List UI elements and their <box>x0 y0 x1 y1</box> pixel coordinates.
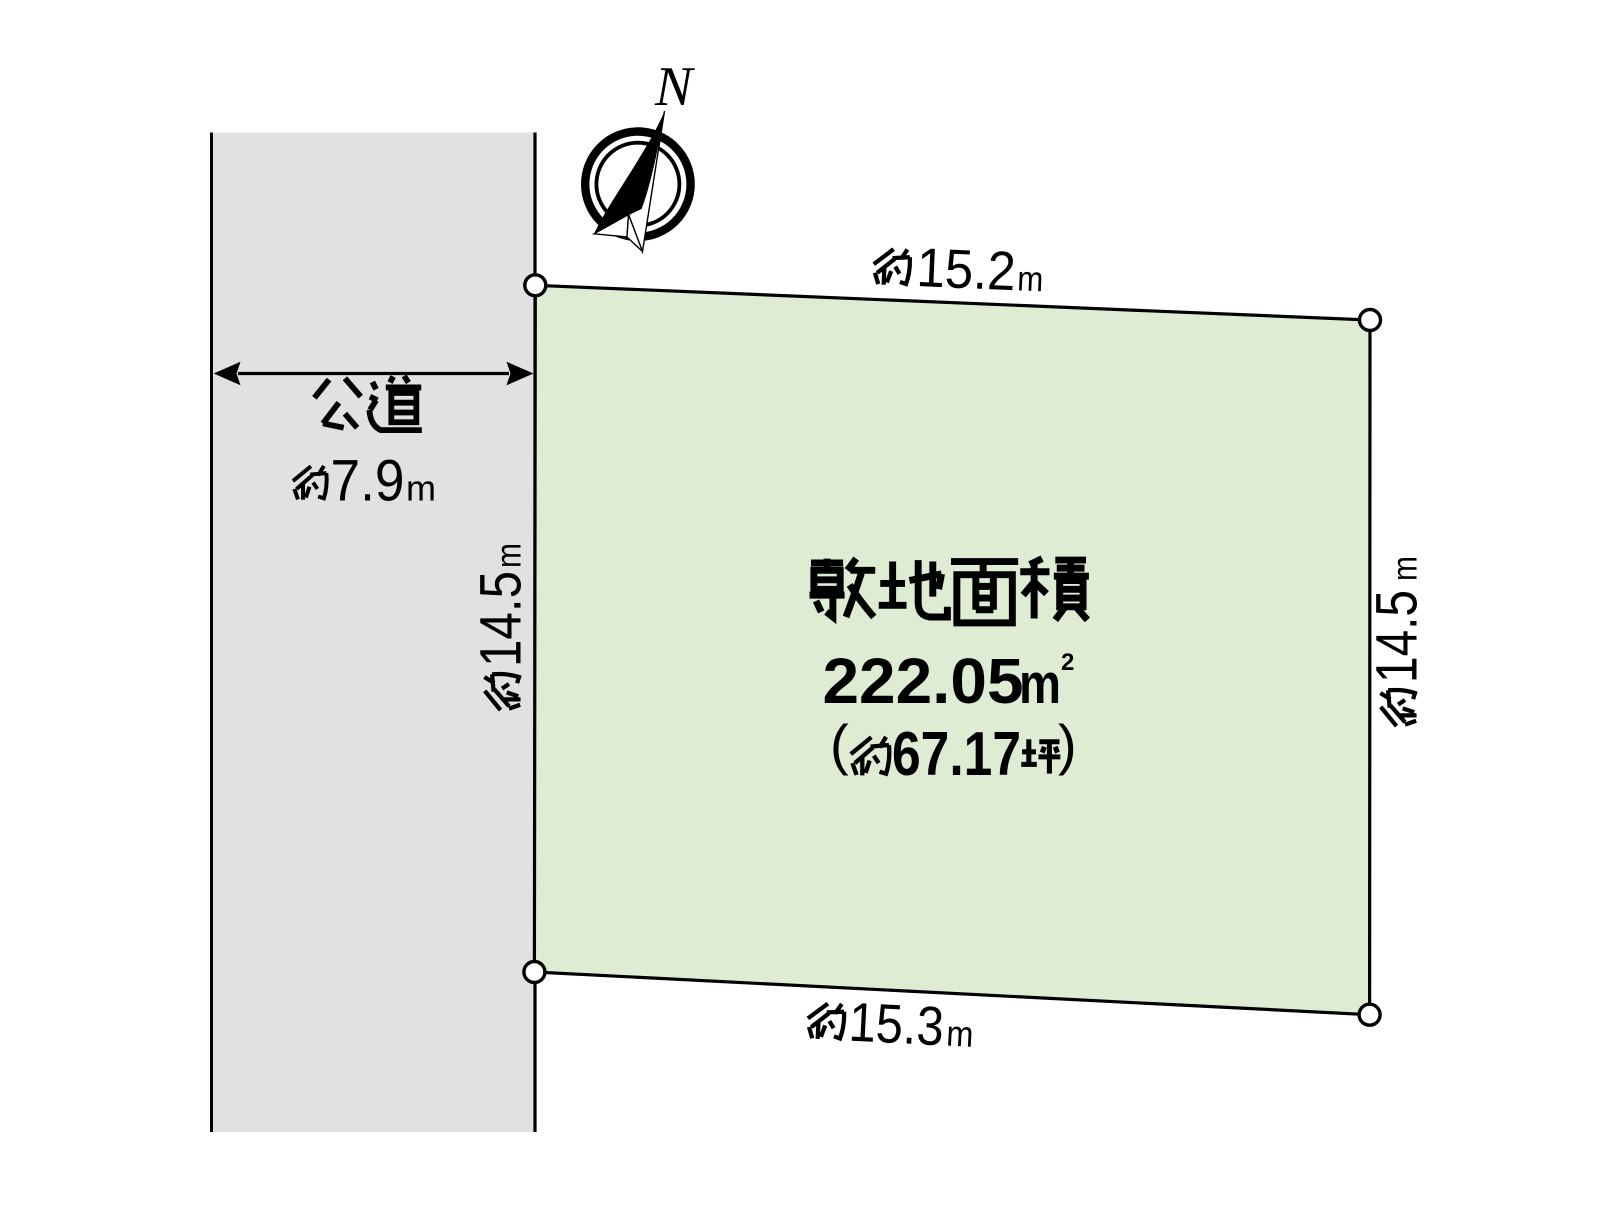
svg-text:14.5: 14.5 <box>469 571 534 667</box>
svg-text:m: m <box>1386 556 1425 581</box>
svg-text:(: ( <box>830 713 849 776</box>
svg-text:67.17: 67.17 <box>892 720 1021 789</box>
svg-text:14.5: 14.5 <box>1365 590 1430 683</box>
svg-text:): ) <box>1058 713 1077 776</box>
svg-text:15.2: 15.2 <box>915 236 1017 302</box>
svg-text:m: m <box>1017 259 1045 299</box>
svg-text:2: 2 <box>1061 649 1074 676</box>
svg-text:7.9: 7.9 <box>331 449 405 514</box>
svg-text:222.05: 222.05 <box>823 645 1024 717</box>
svg-text:m: m <box>490 543 529 568</box>
svg-text:N: N <box>654 56 695 118</box>
svg-text:m: m <box>1019 652 1061 716</box>
svg-text:15.3: 15.3 <box>847 991 945 1058</box>
svg-text:m: m <box>945 1013 974 1055</box>
svg-text:m: m <box>406 468 436 509</box>
